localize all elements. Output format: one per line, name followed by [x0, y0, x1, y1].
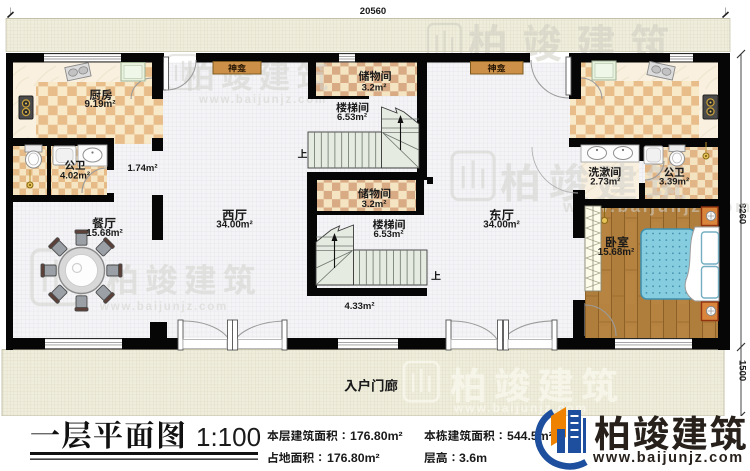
svg-text:2.73m²: 2.73m² [590, 177, 620, 188]
svg-text:1:100: 1:100 [196, 422, 261, 452]
svg-text:1500: 1500 [737, 360, 748, 381]
svg-text:www.baijunjz.com: www.baijunjz.com [99, 301, 228, 313]
svg-text:3.2m²: 3.2m² [362, 199, 387, 210]
svg-text:15.68m²: 15.68m² [598, 247, 635, 258]
svg-text:34.00m²: 34.00m² [483, 220, 520, 231]
svg-text:4.02m²: 4.02m² [60, 171, 90, 182]
svg-text:34.00m²: 34.00m² [216, 220, 253, 231]
svg-text:www.baijunjz.com: www.baijunjz.com [198, 94, 327, 106]
svg-text:6.53m²: 6.53m² [373, 229, 403, 240]
svg-text:15.68m²: 15.68m² [86, 228, 123, 239]
svg-text:1.74m²: 1.74m² [127, 163, 157, 174]
svg-text:6.53m²: 6.53m² [337, 112, 367, 123]
svg-text:3.6m: 3.6m [459, 451, 487, 465]
svg-text:20560: 20560 [360, 6, 386, 17]
svg-text:3.39m²: 3.39m² [659, 177, 689, 188]
svg-text:www.baijunjz.com: www.baijunjz.com [453, 401, 588, 415]
svg-text:176.80m²: 176.80m² [350, 429, 403, 443]
svg-text:3.2m²: 3.2m² [362, 83, 387, 94]
svg-text:4.33m²: 4.33m² [344, 301, 374, 312]
svg-text:176.80m²: 176.80m² [327, 451, 380, 465]
svg-text:www.baijunjz.com: www.baijunjz.com [592, 450, 744, 466]
svg-text:9.19m²: 9.19m² [84, 99, 116, 110]
svg-text:544.5m²: 544.5m² [507, 429, 553, 443]
